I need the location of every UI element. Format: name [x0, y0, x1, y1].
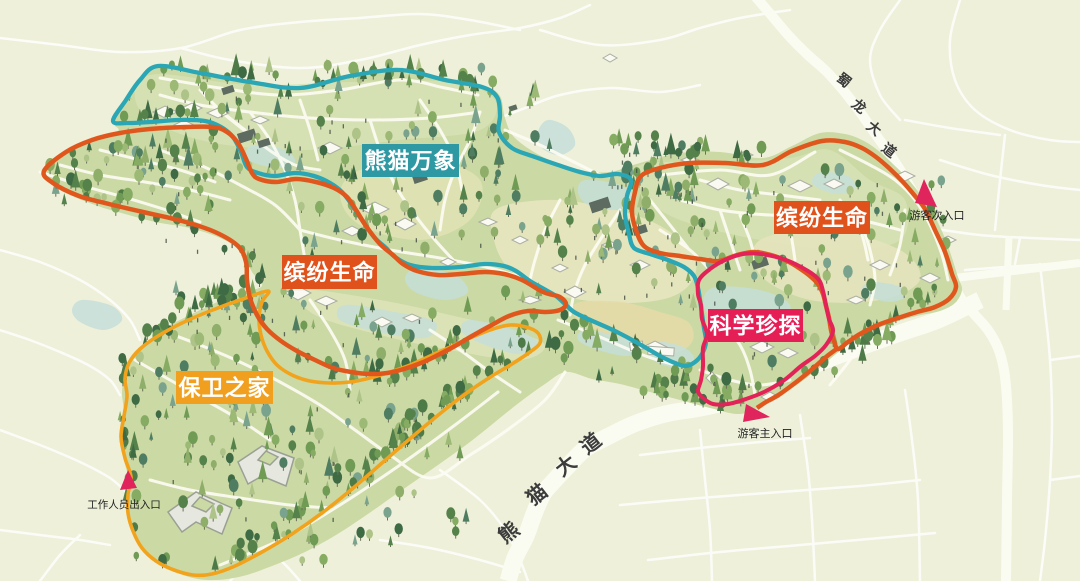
svg-text:游客主入口: 游客主入口: [738, 426, 793, 440]
svg-text:科学珍探: 科学珍探: [709, 313, 801, 338]
svg-text:缤纷生命: 缤纷生命: [283, 260, 375, 285]
svg-text:保卫之家: 保卫之家: [177, 375, 270, 400]
svg-text:缤纷生命: 缤纷生命: [776, 205, 868, 230]
svg-text:工作人员出入口: 工作人员出入口: [87, 498, 161, 511]
svg-text:游客次入口: 游客次入口: [910, 208, 965, 222]
svg-text:熊猫万象: 熊猫万象: [364, 148, 456, 173]
